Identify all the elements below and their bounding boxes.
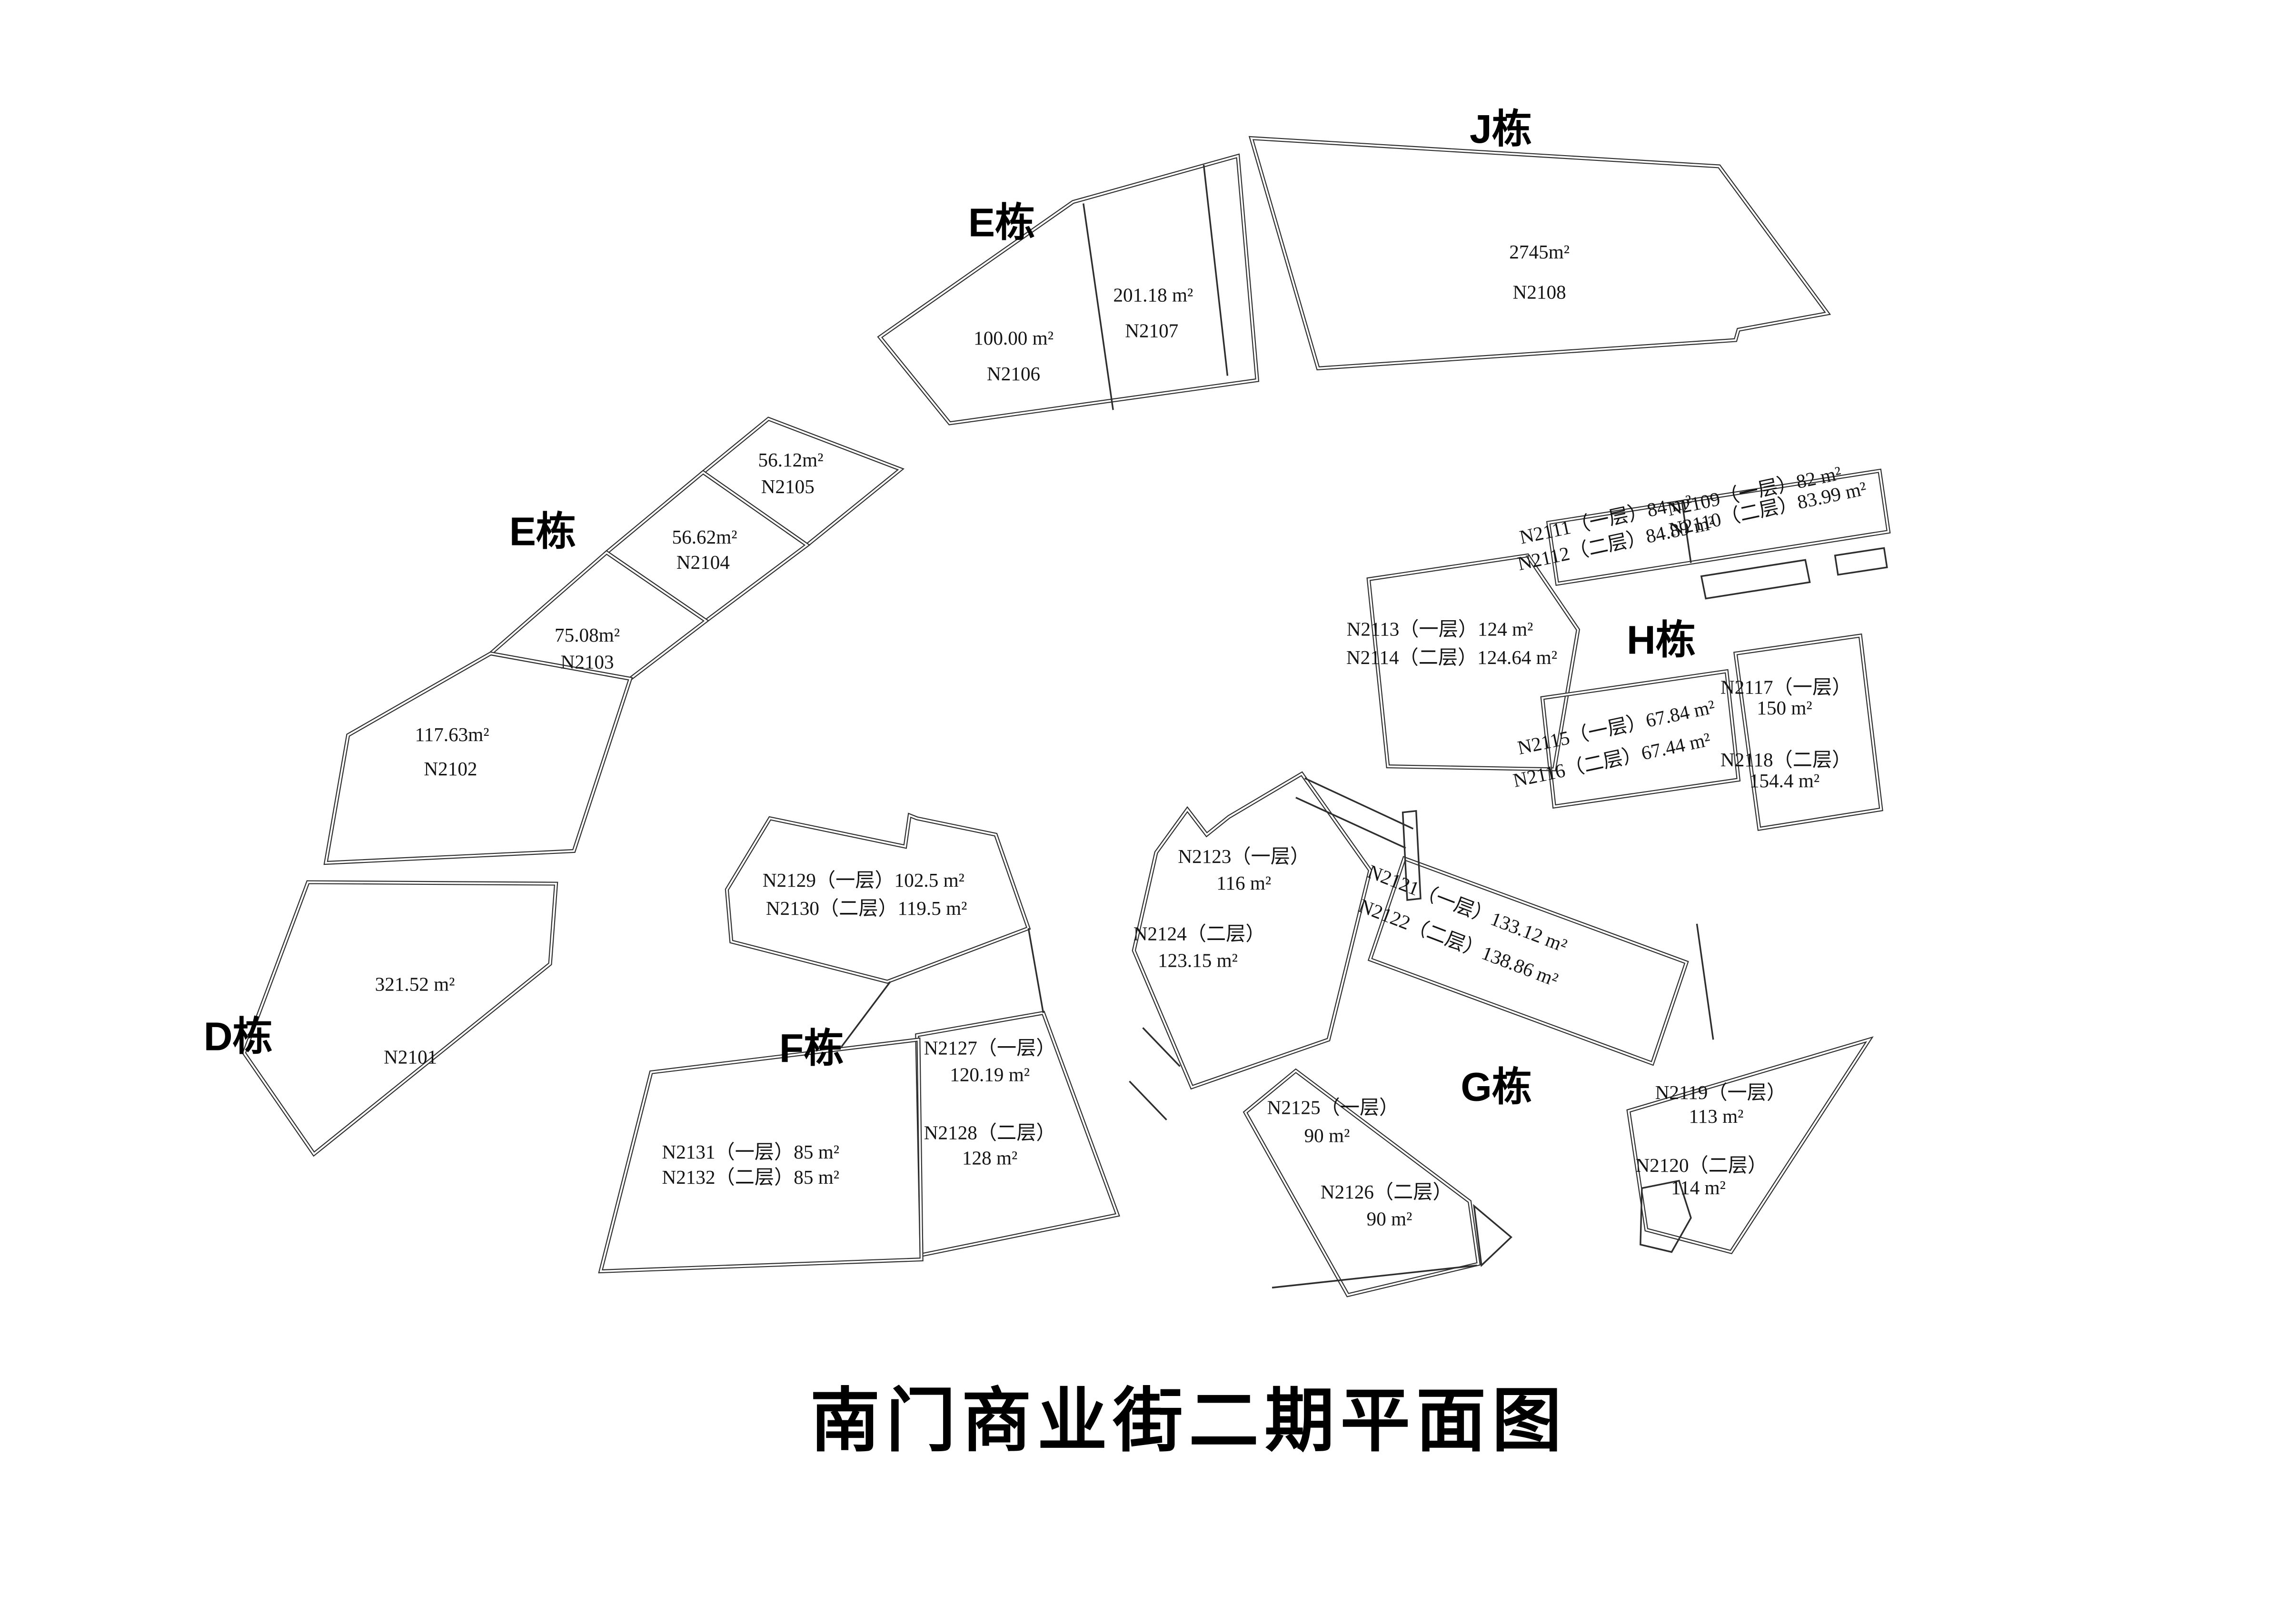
unit-label-n2125-n2126: 90 m² [1304, 1125, 1350, 1147]
building-d-outline [244, 882, 556, 1154]
unit-label-n2117-n2118: N2118（二层） [1720, 749, 1851, 771]
unit-label-n2108: 2745m² [1509, 241, 1570, 263]
unit-label-n2117-n2118: 150 m² [1757, 697, 1812, 719]
unit-n2102-outline [326, 653, 630, 863]
building-label: E栋 [509, 509, 576, 554]
unit-label-n2105: N2105 [761, 475, 815, 497]
unit-label-n2107: N2107 [1125, 319, 1178, 341]
building-label: H栋 [1627, 617, 1696, 662]
divider-n2107-side [1204, 165, 1228, 376]
plan-title: 南门商业街二期平面图 [810, 1382, 1568, 1460]
unit-label-n2119-n2120: 114 m² [1671, 1177, 1726, 1198]
g-small-piece [1474, 1206, 1511, 1266]
unit-label-n2131-n2132: N2132（二层）85 m² [662, 1166, 839, 1188]
unit-label-n2103: 75.08m² [555, 624, 620, 646]
unit-n2119-outline [1629, 1040, 1869, 1252]
unit-label-n2113-n2114: N2113（一层）124 m² [1347, 618, 1533, 640]
unit-label-n2129-n2130: N2130（二层）119.5 m² [766, 897, 967, 919]
unit-label-n2127-n2128: N2128（二层） [924, 1121, 1056, 1143]
unit-label-n2101: 321.52 m² [375, 973, 455, 995]
building-label: J栋 [1470, 107, 1532, 151]
wall-segment [1697, 924, 1713, 1040]
unit-label-n2123-n2124: 123.15 m² [1158, 949, 1238, 971]
unit-label-n2106: 100.00 m² [974, 327, 1054, 349]
unit-label-n2107: 201.18 m² [1113, 284, 1193, 306]
unit-label-n2101: N2101 [384, 1046, 437, 1068]
unit-label-n2108: N2108 [1513, 281, 1566, 303]
building-label: G栋 [1461, 1065, 1532, 1109]
unit-label-n2129-n2130: N2129（一层）102.5 m² [763, 869, 964, 891]
divider-n2106-n2107 [1083, 203, 1113, 410]
wall-segment [841, 982, 890, 1047]
unit-label-n2102: N2102 [424, 758, 477, 780]
unit-label-n2125-n2126: 90 m² [1367, 1208, 1412, 1229]
unit-label-n2127-n2128: N2127（一层） [924, 1037, 1056, 1059]
unit-label-n2102: 117.63m² [415, 723, 489, 745]
unit-label-n2119-n2120: 113 m² [1689, 1105, 1744, 1127]
unit-n2117-outline [1736, 636, 1881, 829]
wall-segment [1028, 928, 1043, 1013]
building-e-top-outline [880, 156, 1257, 424]
unit-label-n2106: N2106 [987, 363, 1040, 385]
h-strip-tab [1701, 560, 1810, 598]
unit-label-n2113-n2114: N2114（二层）124.64 m² [1346, 646, 1557, 668]
unit-label-n2125-n2126: N2126（二层） [1321, 1181, 1452, 1203]
wall-segment [1272, 1266, 1477, 1288]
unit-label-n2123-n2124: 116 m² [1216, 872, 1271, 894]
unit-label-n2103: N2103 [561, 651, 614, 673]
unit-label-n2117-n2118: 154.4 m² [1749, 770, 1819, 792]
unit-label-n2104: 56.62m² [672, 526, 737, 548]
unit-label-n2117-n2118: N2117（一层） [1720, 676, 1851, 698]
unit-labels: 321.52 m²N2101117.63m²N210275.08m²N21035… [375, 241, 1869, 1229]
building-label: D栋 [204, 1014, 273, 1059]
building-label: E栋 [968, 200, 1035, 245]
unit-label-n2123-n2124: N2123（一层） [1178, 845, 1310, 867]
unit-label-n2131-n2132: N2131（一层）85 m² [662, 1141, 839, 1163]
unit-label-n2119-n2120: N2119（一层） [1655, 1081, 1786, 1103]
unit-label-n2127-n2128: 128 m² [962, 1147, 1017, 1168]
wall-segment [1129, 1081, 1166, 1120]
floor-plan-svg: D栋E栋E栋F栋G栋H栋J栋 321.52 m²N2101117.63m²N21… [0, 0, 2296, 1604]
unit-label-n2125-n2126: N2125（一层） [1267, 1096, 1399, 1118]
unit-label-n2123-n2124: N2124（二层） [1133, 922, 1265, 944]
floor-plan-canvas: D栋E栋E栋F栋G栋H栋J栋 321.52 m²N2101117.63m²N21… [0, 0, 2296, 1604]
h-strip-tab [1835, 548, 1887, 574]
unit-label-n2119-n2120: N2120（二层） [1635, 1154, 1767, 1176]
building-label: F栋 [779, 1026, 844, 1070]
unit-label-n2127-n2128: 120.19 m² [950, 1064, 1030, 1086]
unit-label-n2105: 56.12m² [758, 449, 824, 471]
unit-label-n2104: N2104 [676, 551, 730, 573]
